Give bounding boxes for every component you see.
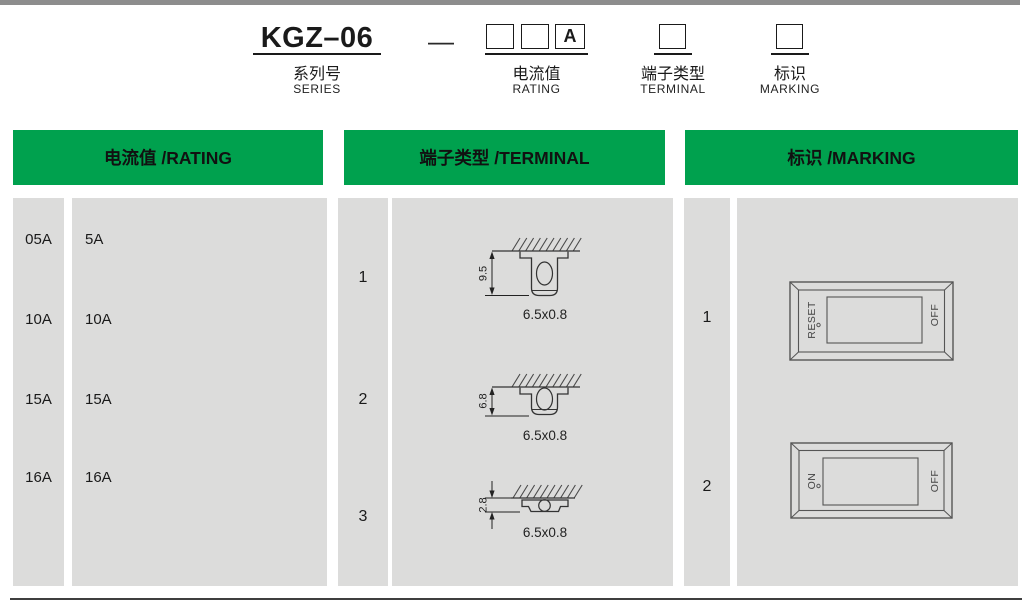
terminal-diagram-3: 2.8 6.5x0.8 <box>478 481 583 540</box>
header-marking: 标识 /MARKING <box>685 130 1018 185</box>
switch-right-label: OFF <box>929 304 941 327</box>
rating-value: 16A <box>85 469 112 487</box>
marking-box <box>776 24 803 49</box>
rating-value: 10A <box>85 311 112 329</box>
panel-hatch <box>513 485 582 498</box>
header-terminal: 端子类型 /TERMINAL <box>344 130 665 185</box>
rating-code: 10A <box>13 311 64 329</box>
switch-diagram-on-off: ON OFF <box>791 443 952 518</box>
marking-label-zh: 标识 <box>740 60 840 84</box>
bottom-divider-line <box>10 598 1022 600</box>
rating-code: 16A <box>13 469 64 487</box>
dimension-value: 6.8 <box>478 393 490 408</box>
marking-code: 2 <box>684 478 730 496</box>
size-label: 6.5x0.8 <box>523 307 567 322</box>
top-divider-bar <box>0 0 1020 5</box>
terminal-drawing-panel: 9.5 6.5x0.8 6.8 6.5x0.8 <box>392 198 673 586</box>
dimension-line <box>485 388 529 417</box>
rating-label-en: RATING <box>485 82 588 96</box>
panel-hatch <box>512 374 581 387</box>
terminal-slot <box>537 262 553 285</box>
switch-right-label: OFF <box>929 470 941 493</box>
dimension-line <box>485 481 520 529</box>
terminal-diagram-1: 9.5 6.5x0.8 <box>478 238 582 322</box>
terminal-hole <box>539 500 551 512</box>
rating-code-panel: 05A 10A 15A 16A <box>13 198 64 586</box>
series-code: KGZ–06 <box>252 22 382 55</box>
marking-drawings: RESET OFF ON OFF <box>737 198 1018 586</box>
terminal-underline <box>654 53 692 55</box>
marking-drawing-panel: RESET OFF ON OFF <box>737 198 1018 586</box>
series-label-en: SERIES <box>253 82 381 96</box>
terminal-label-zh: 端子类型 <box>623 60 723 84</box>
terminal-slot <box>537 388 553 410</box>
terminal-profile <box>520 252 568 296</box>
rocker-button <box>823 458 918 505</box>
dimension-value: 2.8 <box>478 497 490 512</box>
switch-left-label: RESET <box>806 301 818 339</box>
dimension-value: 9.5 <box>478 266 490 281</box>
rating-box-2 <box>521 24 549 49</box>
rating-label-zh: 电流值 <box>485 60 588 84</box>
rating-code: 15A <box>13 391 64 409</box>
series-underline <box>253 53 381 55</box>
size-label: 6.5x0.8 <box>523 525 567 540</box>
rating-value-panel: 5A 10A 15A 16A <box>72 198 327 586</box>
terminal-box <box>659 24 686 49</box>
terminal-diagram-2: 6.8 6.5x0.8 <box>478 374 582 443</box>
rocker-button <box>827 297 922 343</box>
panel-hatch <box>512 238 581 251</box>
marking-label-en: MARKING <box>740 82 840 96</box>
marking-code-panel: 1 2 <box>684 198 730 586</box>
terminal-code-panel: 1 2 3 <box>338 198 388 586</box>
separator-dash: — <box>424 26 458 57</box>
terminal-code: 2 <box>338 391 388 409</box>
marking-code: 1 <box>684 309 730 327</box>
terminal-label-en: TERMINAL <box>623 82 723 96</box>
rating-box-1 <box>486 24 514 49</box>
marking-underline <box>771 53 809 55</box>
header-rating: 电流值 /RATING <box>13 130 323 185</box>
rating-value: 5A <box>85 231 103 249</box>
rating-box-3: A <box>555 24 585 49</box>
catalog-page: KGZ–06 系列号 SERIES — A 电流值 RATING 端子类型 TE… <box>0 0 1030 611</box>
series-label-zh: 系列号 <box>253 60 381 84</box>
terminal-drawings: 9.5 6.5x0.8 6.8 6.5x0.8 <box>392 198 673 586</box>
switch-left-label: ON <box>806 473 818 490</box>
switch-inner-frame <box>799 451 944 511</box>
switch-diagram-reset-off: RESET OFF <box>790 282 953 360</box>
terminal-profile <box>522 500 568 512</box>
size-label: 6.5x0.8 <box>523 428 567 443</box>
rating-value: 15A <box>85 391 112 409</box>
terminal-code: 1 <box>338 269 388 287</box>
rating-code: 05A <box>13 231 64 249</box>
terminal-code: 3 <box>338 508 388 526</box>
rating-underline <box>485 53 588 55</box>
